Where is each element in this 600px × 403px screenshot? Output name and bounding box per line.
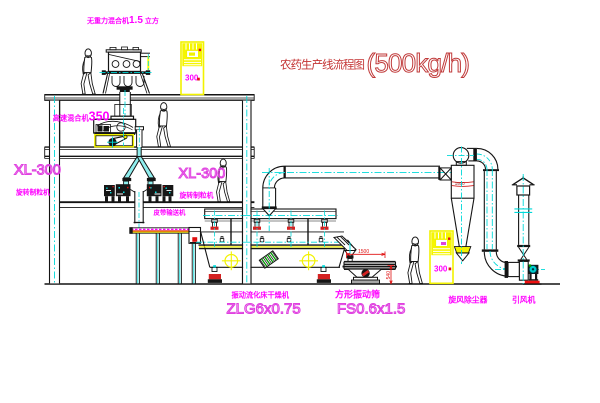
svg-text:300: 300 xyxy=(185,74,199,83)
svg-text:1500: 1500 xyxy=(358,249,369,255)
svg-text:1500: 1500 xyxy=(455,181,465,186)
svg-text:旋转制粒机: 旋转制粒机 xyxy=(179,191,214,200)
svg-text:ZLG6x0.75: ZLG6x0.75 xyxy=(227,301,301,318)
svg-text:农药生产线流程图: 农药生产线流程图 xyxy=(280,58,364,72)
svg-text:(500kg/h): (500kg/h) xyxy=(367,48,470,78)
svg-text:XL-300: XL-300 xyxy=(14,163,61,179)
svg-text:FS0.6x1.5: FS0.6x1.5 xyxy=(337,301,405,318)
svg-text:方形振动筛: 方形振动筛 xyxy=(335,289,380,300)
svg-text:皮带输送机: 皮带输送机 xyxy=(153,208,187,217)
svg-text:XL-300: XL-300 xyxy=(179,166,226,182)
svg-text:540: 540 xyxy=(386,271,392,280)
svg-text:300: 300 xyxy=(434,265,448,274)
svg-text:旋转制粒机: 旋转制粒机 xyxy=(15,188,50,197)
svg-text:振动流化床干燥机: 振动流化床干燥机 xyxy=(232,291,290,300)
svg-text:旋风除尘器: 旋风除尘器 xyxy=(447,295,487,305)
svg-text:引风机: 引风机 xyxy=(512,295,536,305)
